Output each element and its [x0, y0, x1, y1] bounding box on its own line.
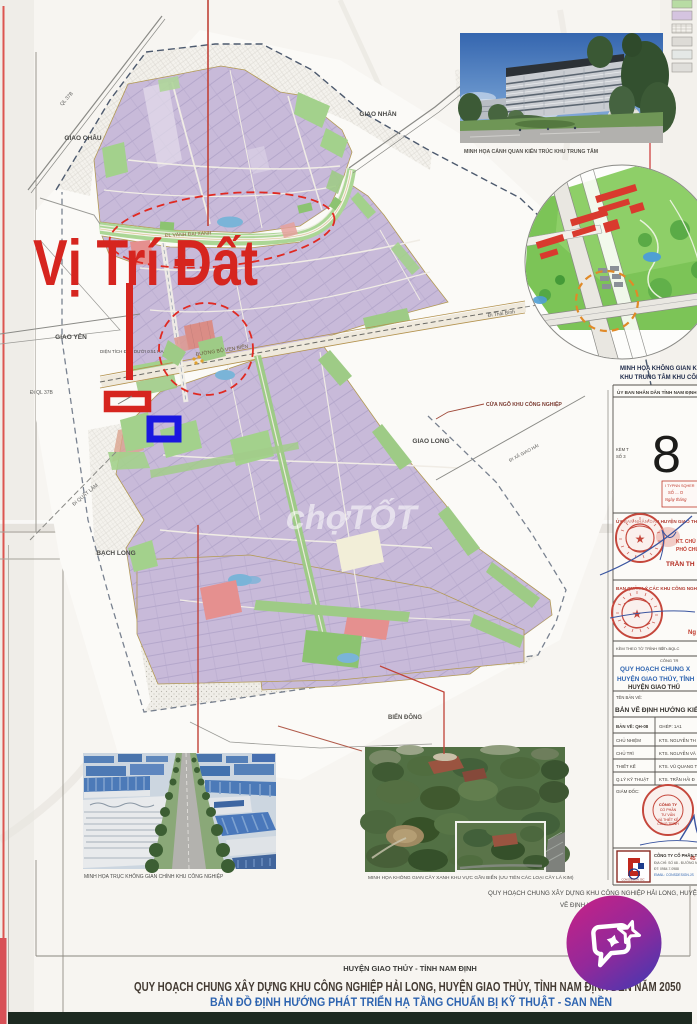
svg-text:KHU TRUNG TÂM KHU CÔNG: KHU TRUNG TÂM KHU CÔNG — [620, 373, 697, 381]
svg-text:SỐ ... O: SỐ ... O — [668, 490, 684, 495]
svg-text:KTS. NGUYỄN TH: KTS. NGUYỄN TH — [659, 738, 696, 743]
svg-text:MINH HỌA KHÔNG GIAN KIẾN: MINH HỌA KHÔNG GIAN KIẾN — [620, 364, 697, 372]
svg-text:Vị Trí Đất: Vị Trí Đất — [33, 226, 258, 299]
svg-text:HUYỆN GIAO THỦ: HUYỆN GIAO THỦ — [628, 683, 680, 691]
svg-text:KÈM THEO TỜ TRÌNH SỐ: KÈM THEO TỜ TRÌNH SỐ — [616, 646, 664, 651]
svg-text:EMAIL: CONSDESIGN.JS: EMAIL: CONSDESIGN.JS — [654, 873, 694, 877]
svg-text:GIAO CHÂU: GIAO CHÂU — [64, 133, 102, 142]
svg-text:BẠCH LONG: BẠCH LONG — [96, 550, 135, 557]
svg-text:CÔNG TR: CÔNG TR — [660, 658, 678, 663]
svg-text:Q.LÝ KỸ THUẬT: Q.LÝ KỸ THUẬT — [616, 777, 649, 782]
svg-text:GIAO YÊN: GIAO YÊN — [55, 332, 87, 341]
svg-text:ĐỊA CHỈ: SỐ 68 - ĐƯỜNG NGÔ: ĐỊA CHỈ: SỐ 68 - ĐƯỜNG NGÔ — [654, 860, 697, 865]
svg-text:TÊN BẢN VẼ:: TÊN BẢN VẼ: — [616, 695, 642, 700]
svg-text:CỬA NGÕ KHU CÔNG NGHIỆP: CỬA NGÕ KHU CÔNG NGHIỆP — [486, 400, 562, 408]
svg-text:HUYỆN GIAO THỦY, TỈNH: HUYỆN GIAO THỦY, TỈNH — [617, 674, 695, 683]
svg-text:Ng: Ng — [688, 630, 696, 636]
svg-text:CÔNG TY: CÔNG TY — [659, 802, 678, 807]
svg-text:ĐT: 0984.7.0988: ĐT: 0984.7.0988 — [654, 867, 679, 871]
svg-text:CHỦ NHIỆM: CHỦ NHIỆM — [616, 738, 641, 743]
svg-text:PHÓ CHỦ: PHÓ CHỦ — [676, 545, 697, 553]
svg-text:GIAO LONG: GIAO LONG — [412, 438, 449, 445]
svg-text:QUY HOẠCH CHUNG X: QUY HOẠCH CHUNG X — [620, 666, 691, 673]
svg-text:I TYPNN SQHER: I TYPNN SQHER — [665, 484, 695, 488]
svg-text:BẢN VẼ: QH-08: BẢN VẼ: QH-08 — [616, 724, 649, 729]
svg-text:BẢN ĐỒ ĐỊNH HƯỚNG PHÁT TRIỂN H: BẢN ĐỒ ĐỊNH HƯỚNG PHÁT TRIỂN HẠ TẦNG CHU… — [210, 996, 612, 1009]
svg-text:/TTr-BQLC: /TTr-BQLC — [660, 646, 680, 651]
svg-text:KÈM T: KÈM T — [616, 447, 629, 452]
svg-text:8: 8 — [652, 426, 681, 484]
svg-text:GIÁM ĐỐC:: GIÁM ĐỐC: — [616, 789, 639, 794]
svg-text:MINH HỌA CẢNH QUAN KIẾN TRÚC K: MINH HỌA CẢNH QUAN KIẾN TRÚC KHU TRUNG T… — [464, 148, 598, 155]
svg-text:Đi QL 37B: Đi QL 37B — [30, 390, 54, 396]
svg-text:CONSDESIGN JSC: CONSDESIGN JSC — [621, 878, 644, 882]
svg-text:ỦY BAN NHÂN DÂN TỈNH NAM ĐỊNH: ỦY BAN NHÂN DÂN TỈNH NAM ĐỊNH — [617, 389, 697, 395]
svg-text:CỔ PHẦN: CỔ PHẦN — [660, 807, 677, 812]
svg-text:KTS. NGUYỄN VĂ: KTS. NGUYỄN VĂ — [659, 751, 696, 756]
svg-text:BẢN VẼ ĐỊNH HƯỚNG KIỂM S: BẢN VẼ ĐỊNH HƯỚNG KIỂM S — [615, 705, 697, 714]
svg-text:CHỦ TRÌ: CHỦ TRÌ — [616, 751, 634, 756]
svg-text:THIẾT KẾ: THIẾT KẾ — [616, 764, 636, 769]
svg-text:HUYỆN GIAO THỦY - TỈNH NAM ĐỊN: HUYỆN GIAO THỦY - TỈNH NAM ĐỊNH — [343, 964, 477, 973]
svg-text:MINH HỌA TRỤC KHÔNG GIAN CHÍNH: MINH HỌA TRỤC KHÔNG GIAN CHÍNH KHU CÔNG … — [84, 872, 224, 880]
svg-text:CÔNG TY CỔ PHẦN TƯ V: CÔNG TY CỔ PHẦN TƯ V — [654, 853, 697, 858]
svg-text:★: ★ — [635, 532, 646, 546]
svg-text:GIAO NHÂN: GIAO NHÂN — [359, 109, 397, 118]
svg-text:SỐ 3: SỐ 3 — [616, 454, 626, 459]
svg-text:CÔNG TRÌNH: CÔNG TRÌNH — [657, 821, 679, 826]
svg-text:KTS. VŨ QUANG T: KTS. VŨ QUANG T — [659, 764, 697, 769]
svg-text:TƯ VẤN: TƯ VẤN — [661, 813, 675, 817]
svg-text:KTS. TRẦN HẢI Đ: KTS. TRẦN HẢI Đ — [659, 777, 695, 782]
svg-text:BIỂN ĐÔNG: BIỂN ĐÔNG — [388, 713, 422, 721]
svg-text:chợTỐT: chợTỐT — [286, 498, 420, 537]
svg-text:Ngày tháng: Ngày tháng — [665, 497, 687, 502]
svg-text:GHÉP: 1A1: GHÉP: 1A1 — [659, 724, 682, 729]
svg-text:KT. CHỦ: KT. CHỦ — [676, 538, 696, 545]
svg-text:QUY HOẠCH CHUNG XÂY DỰNG KHU C: QUY HOẠCH CHUNG XÂY DỰNG KHU CÔNG NGHIỆP… — [488, 889, 697, 897]
